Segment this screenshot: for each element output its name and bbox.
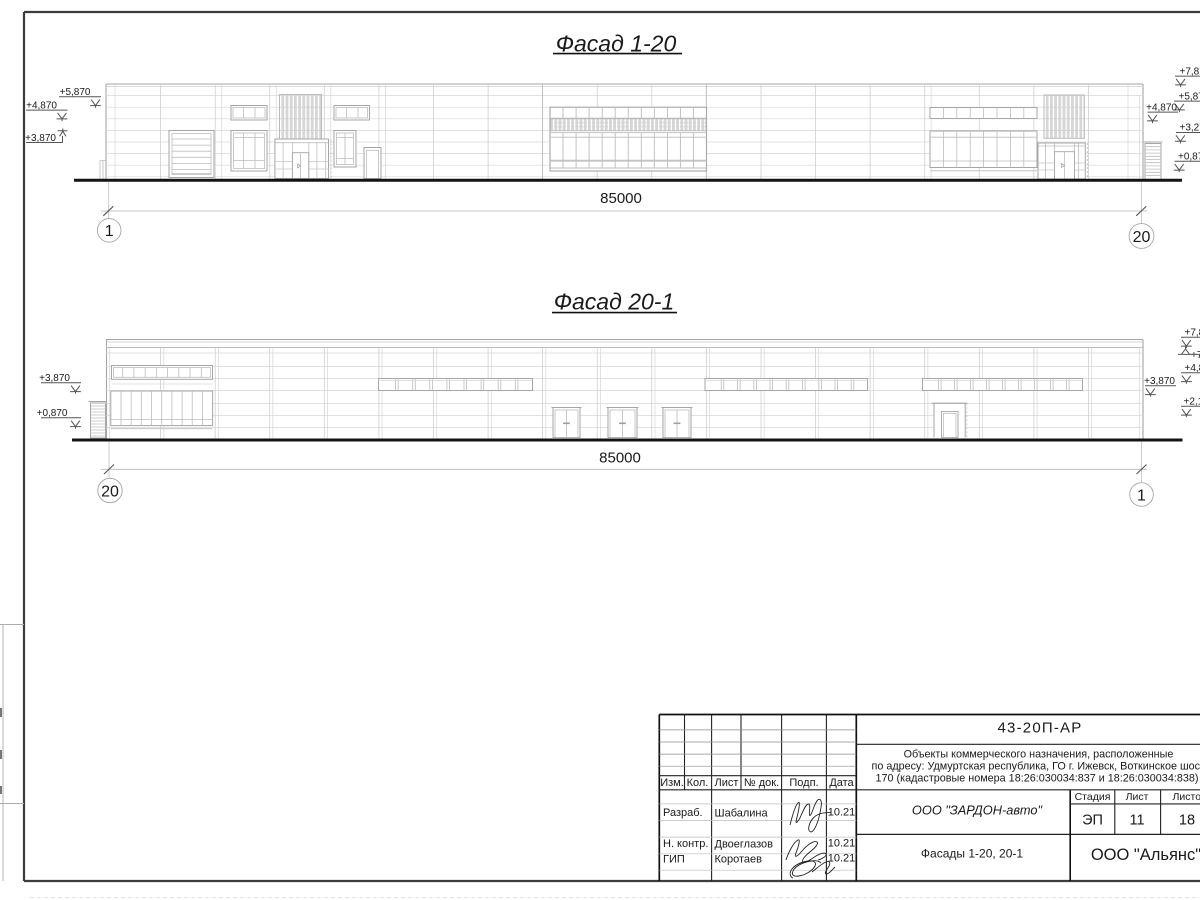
svg-text:ООО "ЗАРДОН-авто": ООО "ЗАРДОН-авто" bbox=[912, 803, 1044, 818]
svg-text:Шабалина: Шабалина bbox=[715, 808, 769, 820]
svg-text:Стадия: Стадия bbox=[1075, 791, 1111, 803]
svg-text:Двоеглазов: Двоеглазов bbox=[715, 839, 774, 851]
svg-text:ЭП: ЭП bbox=[1082, 813, 1103, 829]
svg-text:1: 1 bbox=[105, 223, 114, 240]
svg-text:Лист: Лист bbox=[715, 777, 739, 789]
svg-text:85000: 85000 bbox=[600, 190, 642, 207]
svg-text:18: 18 bbox=[1179, 813, 1195, 829]
svg-text:№ док.: № док. bbox=[744, 777, 779, 789]
svg-text:Изм.: Изм. bbox=[660, 777, 684, 789]
svg-text:Дата: Дата bbox=[829, 777, 854, 789]
svg-text:Подп.: Подп. bbox=[789, 777, 818, 789]
svg-text:10.21: 10.21 bbox=[828, 853, 856, 865]
svg-text:85000: 85000 bbox=[599, 450, 641, 467]
svg-text:1: 1 bbox=[1137, 487, 1146, 504]
svg-text:Фасад 1-20: Фасад 1-20 bbox=[556, 30, 677, 56]
svg-text:Листов: Листов bbox=[1173, 791, 1200, 803]
svg-text:Фасады 1-20, 20-1: Фасады 1-20, 20-1 bbox=[921, 847, 1023, 861]
svg-text:+7,370: +7,370 bbox=[1191, 350, 1200, 361]
svg-text:Лист: Лист bbox=[1126, 791, 1149, 803]
svg-text:43-20П-АР: 43-20П-АР bbox=[998, 720, 1083, 737]
svg-text:Объекты коммерческого назначен: Объекты коммерческого назначения, распол… bbox=[904, 749, 1174, 761]
svg-text:20: 20 bbox=[101, 483, 119, 500]
svg-text:11: 11 bbox=[1129, 813, 1144, 829]
svg-text:Разраб.: Разраб. bbox=[663, 807, 703, 819]
svg-text:ГИП: ГИП bbox=[663, 854, 685, 866]
svg-text:20: 20 bbox=[1133, 229, 1151, 246]
svg-text:Н. контр.: Н. контр. bbox=[663, 838, 708, 850]
svg-text:10.21: 10.21 bbox=[828, 807, 856, 819]
svg-text:Коротаев: Коротаев bbox=[715, 854, 763, 866]
svg-text:по адресу: Удмуртская республи: по адресу: Удмуртская республика, ГО г. … bbox=[871, 761, 1200, 773]
svg-text:10.21: 10.21 bbox=[828, 838, 856, 850]
svg-text:ООО "Альянс": ООО "Альянс" bbox=[1091, 846, 1200, 864]
svg-text:Фасад 20-1: Фасад 20-1 bbox=[554, 288, 675, 314]
svg-text:Кол.: Кол. bbox=[687, 777, 709, 789]
svg-text:170 (кадастровые номера 18:26:: 170 (кадастровые номера 18:26:030034:837… bbox=[876, 773, 1199, 785]
